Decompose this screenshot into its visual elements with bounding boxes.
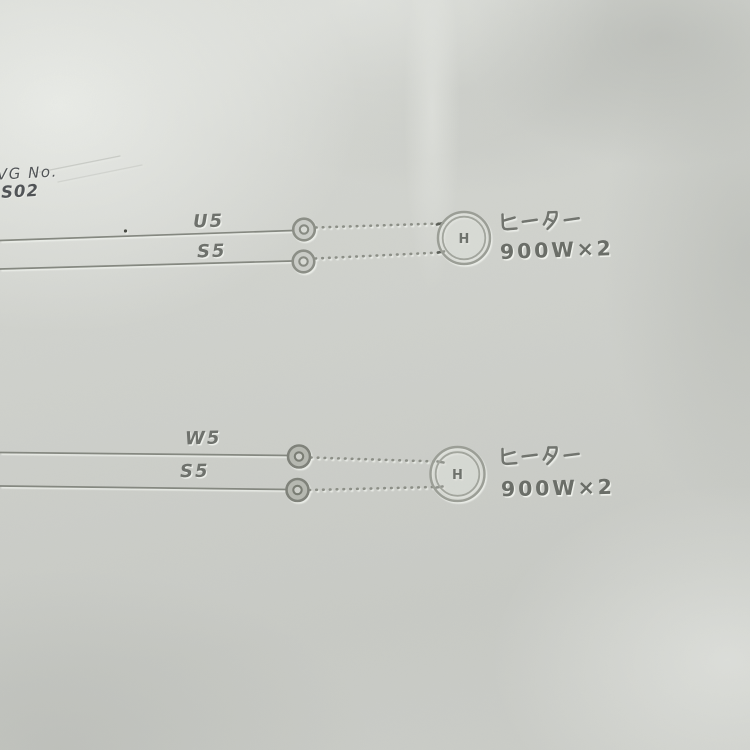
dotted-link-w5 bbox=[311, 458, 437, 462]
heater-symbol-2: H bbox=[431, 447, 485, 501]
dotted-link-s5-bottom bbox=[310, 487, 436, 490]
wire-label-s5-bottom: S5 bbox=[180, 461, 210, 483]
heater-name-katakana-1 bbox=[502, 211, 579, 230]
heater-power-rating-2: 900W×2 bbox=[501, 475, 615, 501]
heater-power-rating-1: 900W×2 bbox=[500, 236, 614, 264]
photo-of-wiring-diagram: H bbox=[0, 0, 750, 750]
dotted-link-s5-top bbox=[316, 253, 442, 259]
wire-label-w5: W5 bbox=[185, 428, 222, 450]
heater-symbol-letter: H bbox=[459, 232, 470, 247]
dust-speck bbox=[124, 229, 127, 232]
wire-s5-bottom bbox=[0, 486, 287, 490]
drawing-number-value: 'S02 bbox=[0, 181, 39, 202]
wire-s5-top bbox=[0, 261, 293, 269]
heater-name-katakana-2 bbox=[502, 447, 578, 465]
wire-label-u5: U5 bbox=[193, 210, 225, 232]
heater-symbol-1: H bbox=[438, 212, 490, 264]
wire-u5 bbox=[0, 231, 294, 241]
dotted-link-u5 bbox=[316, 224, 440, 228]
wire-w5 bbox=[0, 453, 288, 456]
terminal-s5-top bbox=[293, 251, 315, 273]
terminal-s5-bottom bbox=[287, 479, 309, 501]
paper-scratch bbox=[58, 165, 142, 182]
diagram-canvas: H bbox=[0, 0, 750, 750]
wire-label-s5-top: S5 bbox=[197, 240, 227, 262]
heater-symbol-letter: H bbox=[452, 468, 463, 483]
terminal-w5 bbox=[288, 446, 310, 468]
terminal-u5 bbox=[293, 219, 315, 241]
